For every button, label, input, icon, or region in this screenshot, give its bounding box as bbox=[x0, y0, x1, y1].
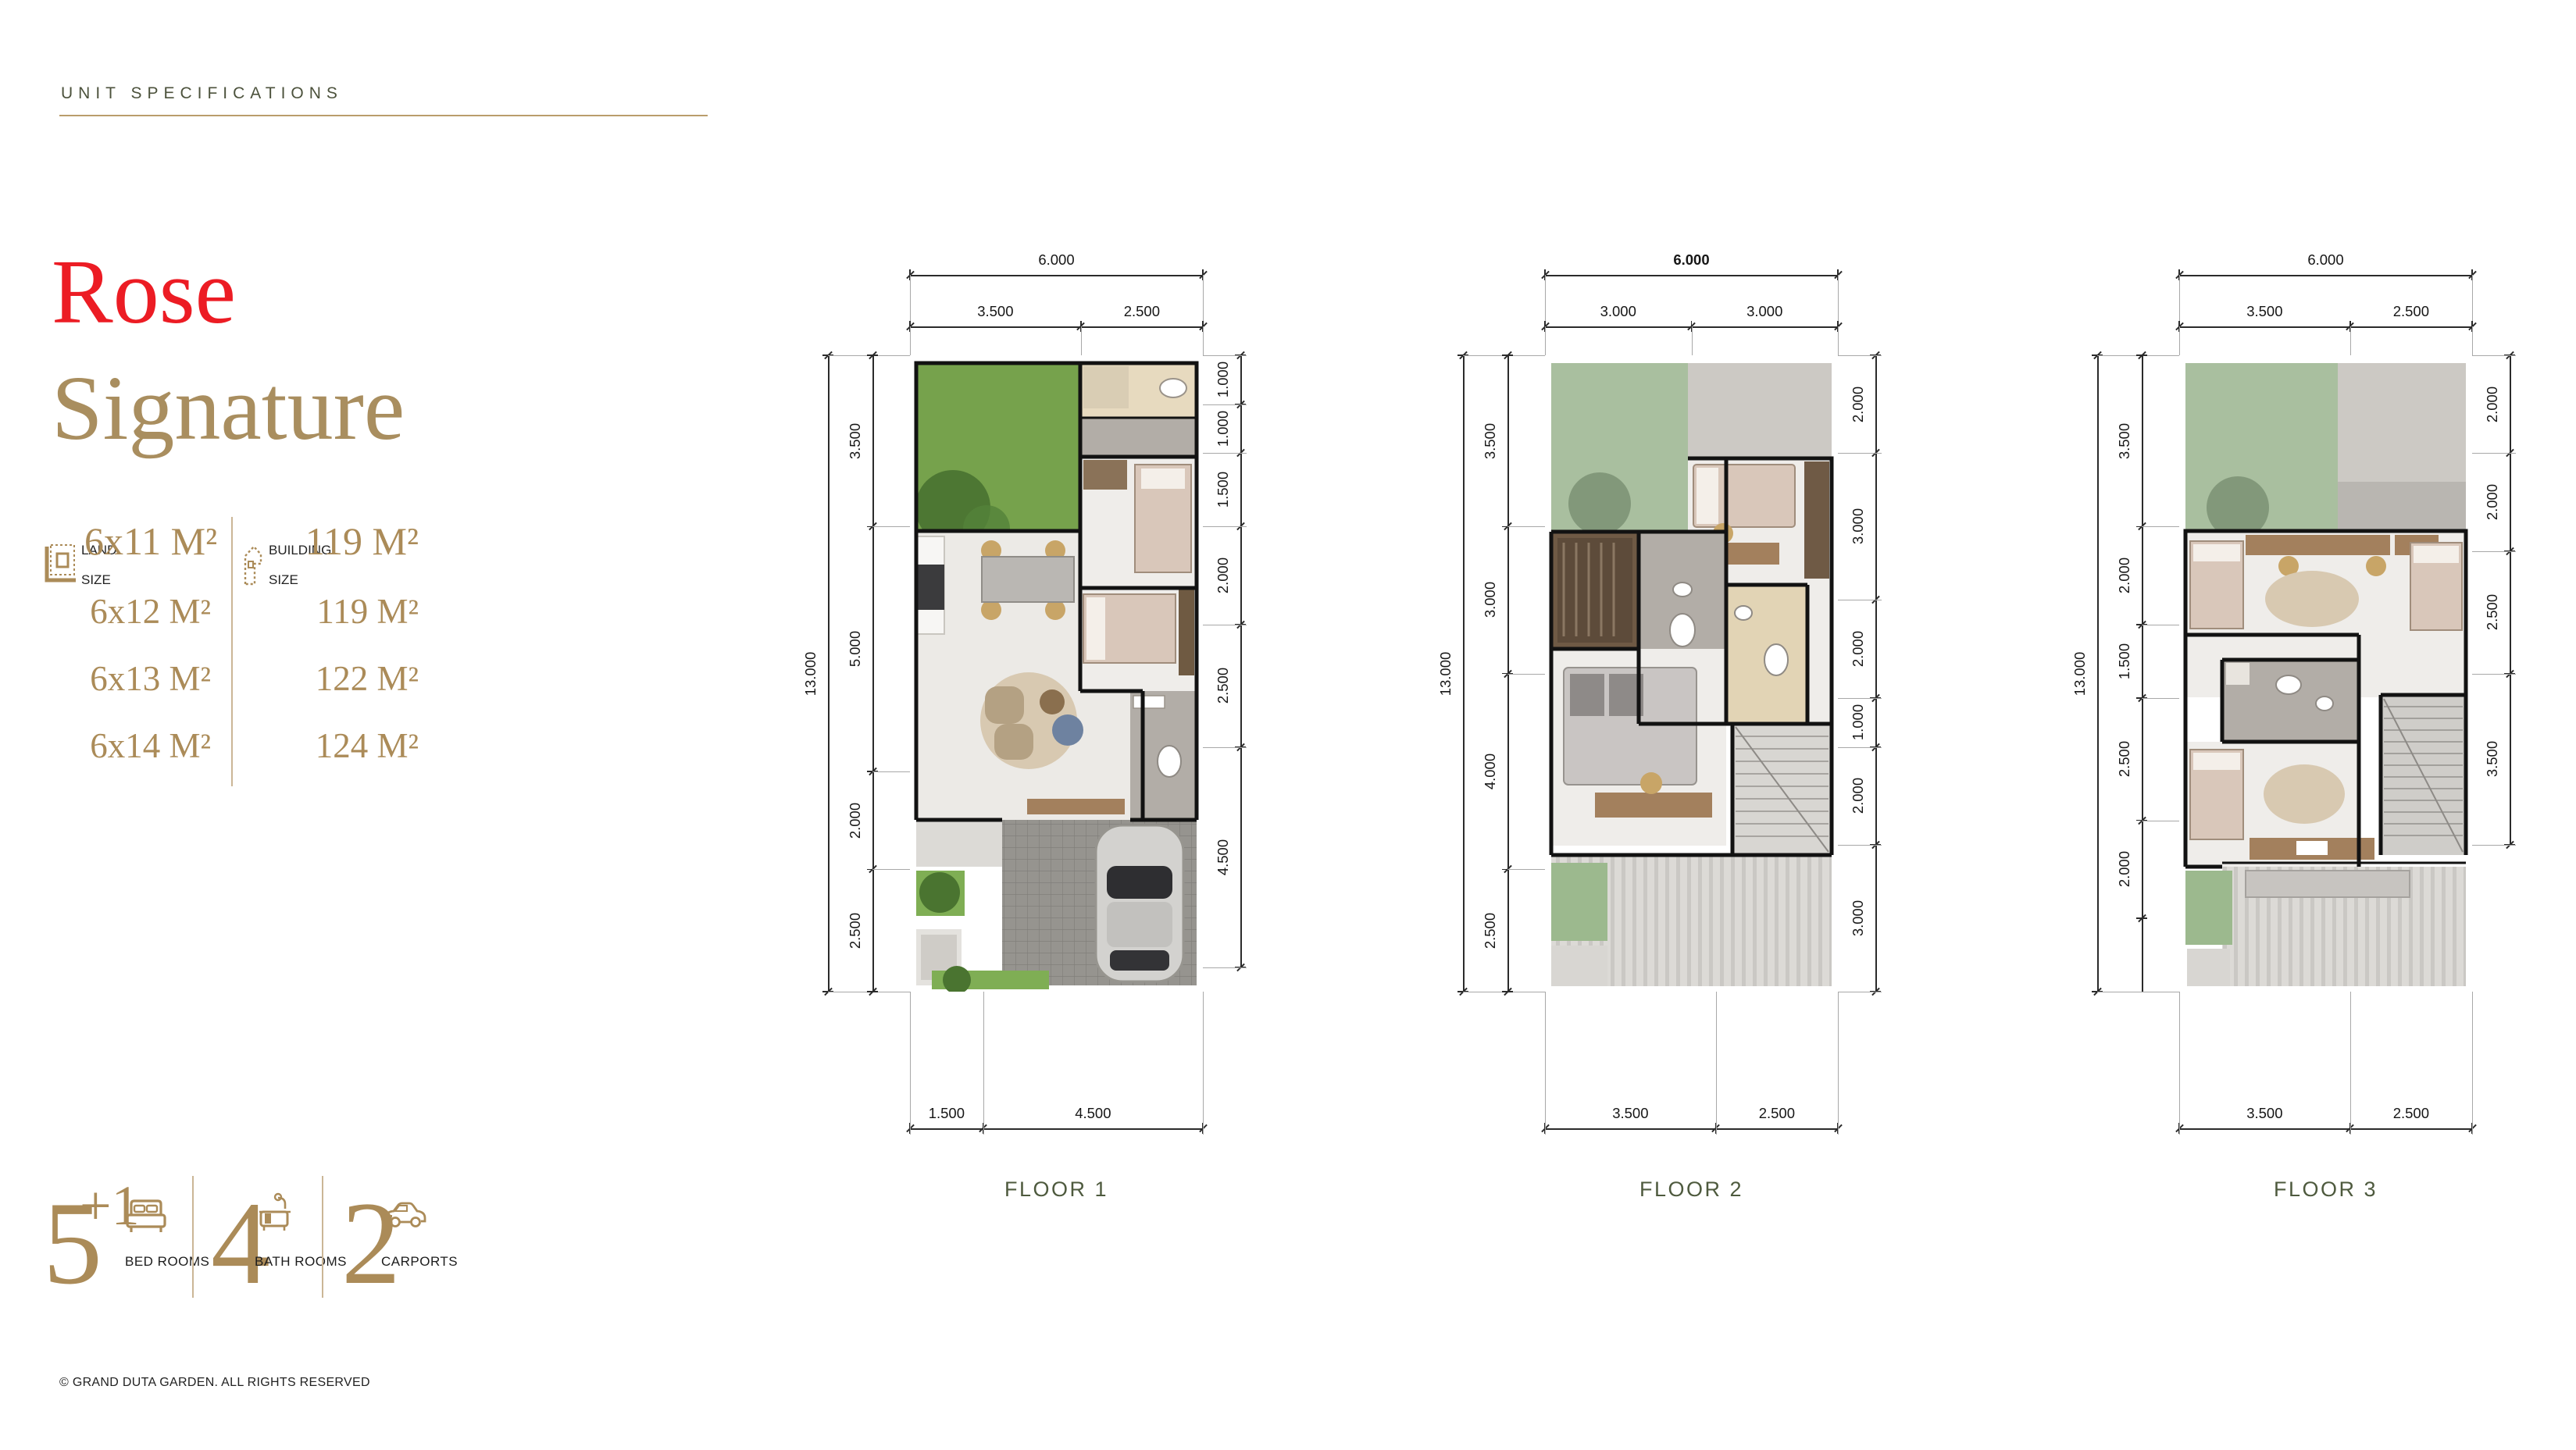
dim-line bbox=[1507, 869, 1545, 870]
dim-label: 3.500 bbox=[1482, 410, 1499, 472]
header-rule bbox=[59, 115, 708, 116]
copyright-text: © GRAND DUTA GARDEN. ALL RIGHTS RESERVED bbox=[59, 1376, 370, 1390]
dim-line bbox=[2472, 453, 2516, 454]
dim-label: 3.000 bbox=[1482, 568, 1499, 631]
dim-label: 2.000 bbox=[1850, 373, 1867, 436]
dim-label: 13.000 bbox=[2071, 643, 2089, 705]
dim-label: 3.500 bbox=[2116, 410, 2133, 472]
dim-line bbox=[1838, 326, 1839, 355]
bed-icon bbox=[125, 1196, 167, 1237]
floor-panel-3: 6.0003.5002.50013.0003.5002.0001.5002.50… bbox=[2054, 219, 2576, 1257]
dim-line bbox=[1507, 526, 1545, 527]
dim-label: 4.500 bbox=[1215, 826, 1232, 889]
dim-label: 1.000 bbox=[1850, 691, 1867, 754]
dim-label: 1.000 bbox=[1215, 397, 1232, 460]
dim-label: 2.000 bbox=[1850, 618, 1867, 680]
dim-line bbox=[872, 869, 910, 870]
dim-label: 2.500 bbox=[2350, 303, 2472, 320]
unit-title-line1: Rose bbox=[52, 234, 405, 351]
building-size-label-2: SIZE bbox=[269, 573, 298, 586]
dim-label: 13.000 bbox=[1437, 643, 1454, 705]
dim-line bbox=[1507, 674, 1545, 675]
dim-label: 5.000 bbox=[847, 618, 864, 680]
dim-line bbox=[910, 275, 1203, 276]
dim-label: 1.500 bbox=[910, 1105, 983, 1122]
building-size-values: 119 M² 119 M² 122 M² 124 M² bbox=[305, 504, 419, 779]
dim-label: 2.500 bbox=[1215, 654, 1232, 717]
dim-line bbox=[1203, 326, 1204, 355]
dim-line bbox=[1203, 453, 1247, 454]
dim-label: 2.000 bbox=[1850, 764, 1867, 827]
dim-label: 2.000 bbox=[847, 789, 864, 852]
dim-label: 2.000 bbox=[2116, 838, 2133, 900]
floor-panel-1: 6.0003.5002.50013.0003.5005.0002.0002.50… bbox=[785, 219, 1332, 1257]
dim-label: 2.500 bbox=[1081, 303, 1203, 320]
dim-line bbox=[2179, 275, 2472, 276]
dim-label: 2.000 bbox=[2484, 471, 2501, 533]
dim-line bbox=[2142, 625, 2179, 625]
floor-1-label: FLOOR 1 bbox=[910, 1177, 1203, 1202]
bath-icon bbox=[258, 1188, 292, 1237]
dim-line bbox=[1240, 355, 1242, 967]
car-icon bbox=[383, 1198, 428, 1232]
amenity-divider bbox=[192, 1176, 194, 1298]
dim-line bbox=[1545, 326, 1546, 355]
land-size-values: 6x11 M² 6x12 M² 6x13 M² 6x14 M² bbox=[84, 504, 211, 779]
dim-line bbox=[2142, 821, 2179, 821]
dim-label: 3.500 bbox=[910, 303, 1081, 320]
dim-line bbox=[2179, 326, 2180, 355]
floor-2-plan-drawing bbox=[1545, 355, 1838, 992]
land-size-value: 6x13 M² bbox=[84, 645, 211, 712]
dim-line bbox=[1838, 453, 1882, 454]
dim-label: 6.000 bbox=[2179, 251, 2472, 269]
amenity-divider bbox=[322, 1176, 323, 1298]
dim-label: 4.000 bbox=[1482, 740, 1499, 803]
building-size-value: 122 M² bbox=[305, 645, 419, 712]
unit-title: Rose Signature bbox=[52, 234, 405, 466]
land-size-value: 6x14 M² bbox=[84, 712, 211, 779]
land-size-value: 6x11 M² bbox=[84, 504, 211, 578]
dim-line bbox=[1203, 992, 1204, 1135]
floor-3-label: FLOOR 3 bbox=[2179, 1177, 2472, 1202]
dim-line bbox=[2142, 526, 2179, 527]
dim-label: 13.000 bbox=[802, 643, 819, 705]
dim-line bbox=[828, 355, 830, 992]
dim-label: 3.500 bbox=[2179, 1105, 2350, 1122]
dim-line bbox=[1838, 747, 1882, 748]
unit-specification-sheet: UNIT SPECIFICATIONS Rose Signature LAND … bbox=[0, 0, 2576, 1450]
dim-line bbox=[910, 326, 1203, 328]
dim-line bbox=[1203, 967, 1247, 968]
carports-label: CARPORTS bbox=[381, 1254, 458, 1270]
dim-label: 3.500 bbox=[847, 410, 864, 472]
dim-line bbox=[1203, 526, 1247, 527]
dim-line bbox=[2472, 992, 2473, 1135]
dim-line bbox=[1838, 845, 1882, 846]
dim-label: 2.000 bbox=[1215, 544, 1232, 607]
dim-line bbox=[2179, 326, 2472, 328]
dim-line bbox=[2510, 355, 2511, 845]
land-size-icon bbox=[43, 539, 79, 587]
dim-label: 4.500 bbox=[983, 1105, 1203, 1122]
floor-3-plan-drawing bbox=[2179, 355, 2472, 992]
dim-line bbox=[1838, 992, 1839, 1135]
dim-line bbox=[1545, 275, 1838, 276]
dim-label: 2.500 bbox=[2484, 581, 2501, 643]
dim-line bbox=[1203, 625, 1247, 625]
dim-line bbox=[1545, 1128, 1838, 1130]
section-eyebrow: UNIT SPECIFICATIONS bbox=[61, 84, 343, 103]
dim-line bbox=[2097, 992, 2179, 992]
dim-line bbox=[2472, 845, 2516, 846]
dim-line bbox=[1838, 600, 1882, 600]
building-size-value: 124 M² bbox=[305, 712, 419, 779]
dim-label: 2.000 bbox=[2484, 373, 2501, 436]
building-size-icon bbox=[241, 540, 264, 587]
bathrooms-label: BATH ROOMS bbox=[255, 1254, 347, 1270]
unit-title-line2: Signature bbox=[52, 351, 405, 467]
dim-line bbox=[2142, 698, 2179, 699]
dim-label: 3.500 bbox=[1545, 1105, 1716, 1122]
dim-label: 3.000 bbox=[1850, 495, 1867, 558]
dim-label: 1.500 bbox=[1215, 458, 1232, 521]
floor-1-plan-drawing bbox=[910, 355, 1203, 992]
dim-label: 2.500 bbox=[2350, 1105, 2472, 1122]
land-size-value: 6x12 M² bbox=[84, 578, 211, 645]
dim-line bbox=[1203, 747, 1247, 748]
dim-label: 2.500 bbox=[1716, 1105, 1838, 1122]
dim-label: 3.000 bbox=[1850, 887, 1867, 949]
dim-line bbox=[2472, 674, 2516, 675]
dim-label: 3.500 bbox=[2179, 303, 2350, 320]
dim-label: 6.000 bbox=[910, 251, 1203, 269]
dim-label: 2.500 bbox=[2116, 728, 2133, 790]
dim-line bbox=[1838, 355, 1882, 356]
dim-label: 1.500 bbox=[2116, 630, 2133, 693]
floor-2-label: FLOOR 2 bbox=[1545, 1177, 1838, 1202]
building-size-value: 119 M² bbox=[305, 578, 419, 645]
bedrooms-label: BED ROOMS bbox=[125, 1254, 209, 1270]
dim-label: 3.500 bbox=[2484, 728, 2501, 790]
dim-line bbox=[872, 771, 910, 772]
dim-label: 2.500 bbox=[1482, 900, 1499, 962]
spec-divider bbox=[231, 517, 233, 786]
dim-line bbox=[872, 526, 910, 527]
dim-line bbox=[2350, 326, 2351, 355]
dim-label: 2.500 bbox=[847, 900, 864, 962]
dim-label: 6.000 bbox=[1545, 251, 1838, 269]
building-size-value: 119 M² bbox=[305, 504, 419, 578]
dim-line bbox=[1463, 355, 1465, 992]
dim-line bbox=[2472, 326, 2473, 355]
dim-line bbox=[910, 326, 911, 355]
dim-line bbox=[2472, 355, 2516, 356]
dim-line bbox=[872, 355, 874, 992]
dim-line bbox=[1081, 326, 1082, 355]
dim-line bbox=[2142, 355, 2143, 992]
floor-panel-2: 6.0003.0003.00013.0003.5003.0004.0002.50… bbox=[1420, 219, 1967, 1257]
dim-line bbox=[1692, 326, 1693, 355]
dim-line bbox=[2472, 551, 2516, 552]
dim-label: 3.000 bbox=[1692, 303, 1839, 320]
dim-line bbox=[2179, 1128, 2472, 1130]
dim-label: 2.000 bbox=[2116, 544, 2133, 607]
dim-line bbox=[910, 1128, 1203, 1130]
dim-label: 3.000 bbox=[1545, 303, 1692, 320]
dim-line bbox=[2097, 355, 2099, 992]
dim-line bbox=[1838, 992, 1882, 992]
